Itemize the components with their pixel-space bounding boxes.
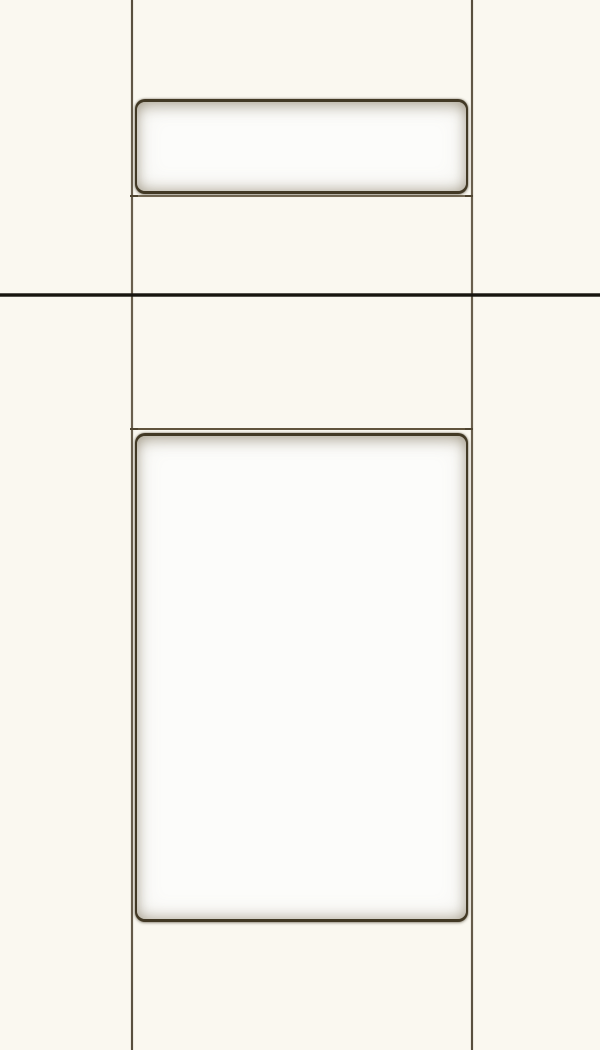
cabinet-product-photo: [0, 0, 600, 1050]
drawer-front-face: [137, 102, 466, 191]
drawer-door-reveal-line: [130, 195, 473, 197]
door-slab: [135, 433, 468, 922]
cabinet-left-edge-line: [131, 0, 133, 1050]
accent-divider-line: [0, 293, 600, 297]
door-face: [137, 436, 466, 919]
drawer-front-slab: [135, 99, 468, 194]
cabinet-right-edge-line: [471, 0, 473, 1050]
door-top-reveal-line: [130, 428, 473, 430]
